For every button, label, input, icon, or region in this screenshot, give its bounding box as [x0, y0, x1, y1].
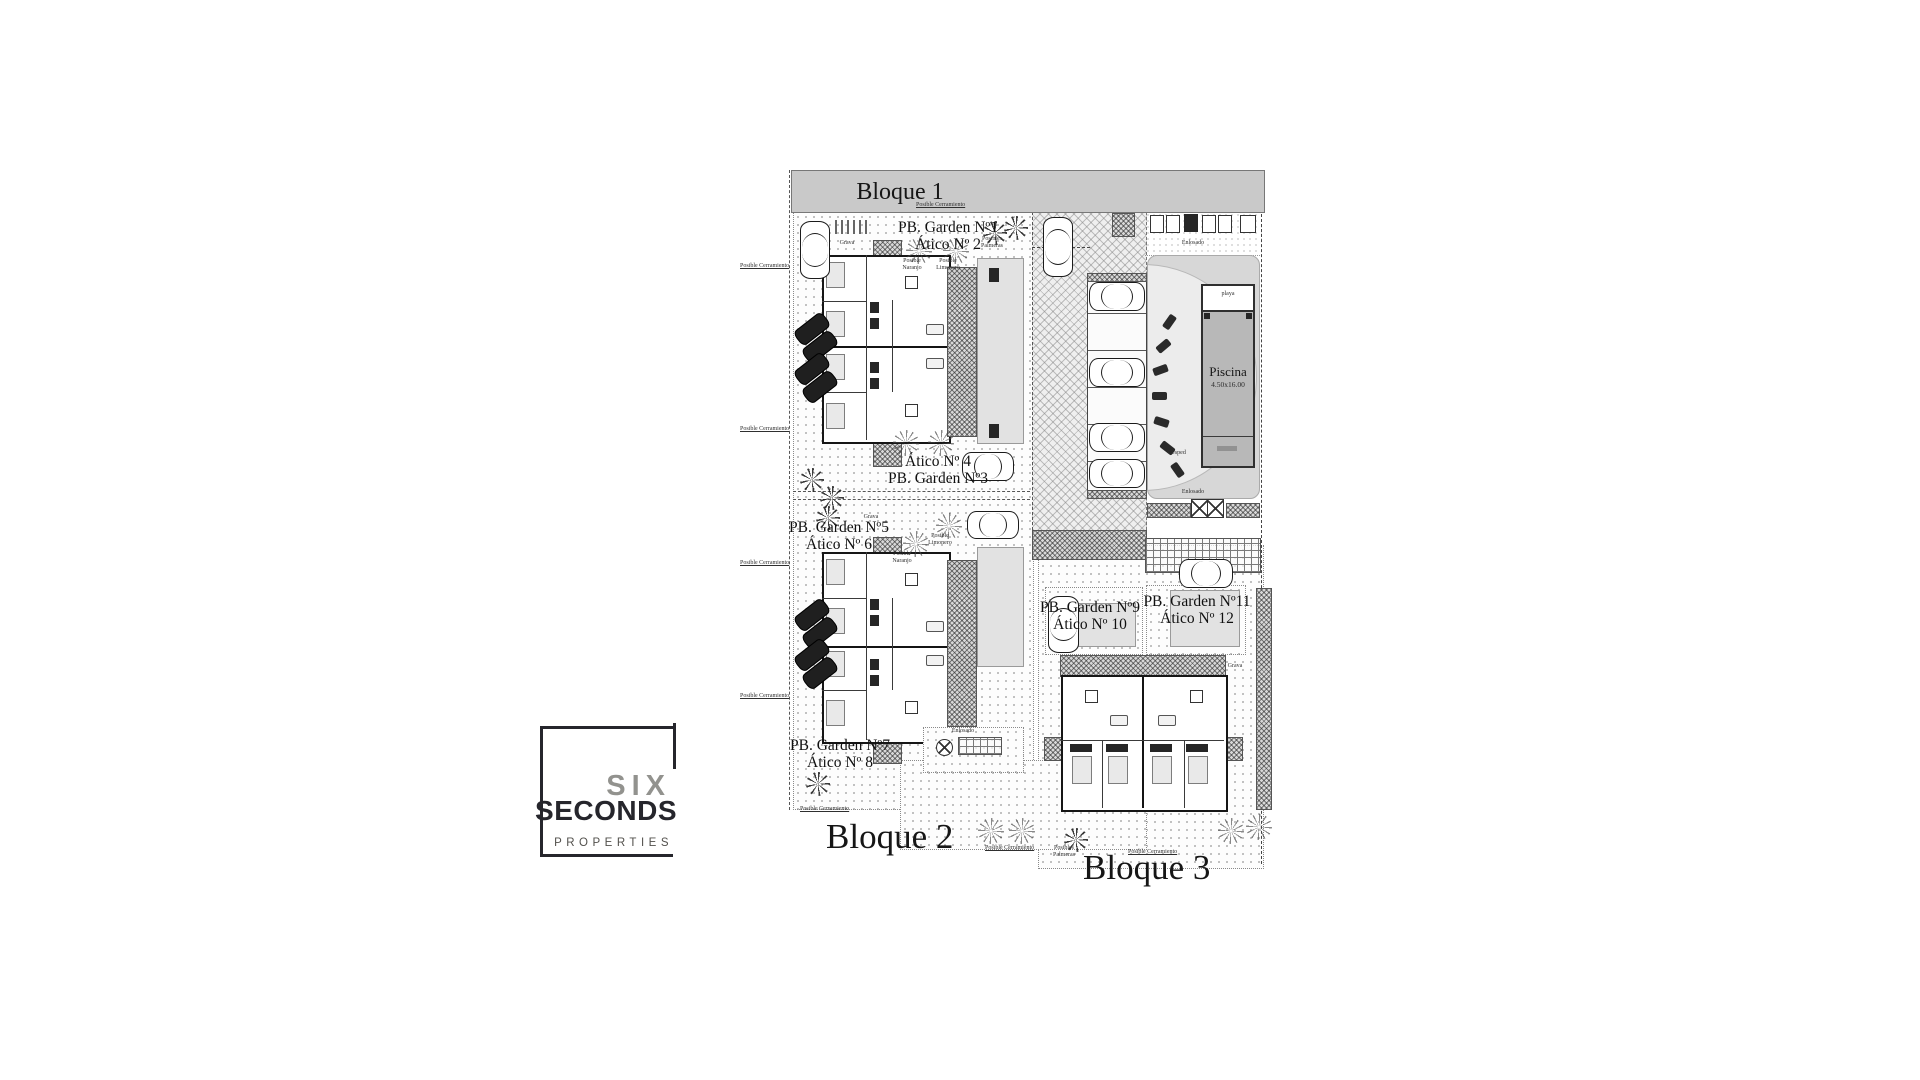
unit-label-line1: PB. Garden Nº1: [878, 219, 1018, 236]
palm-icon: [806, 772, 830, 796]
garden-furniture: [989, 424, 999, 438]
bike-rack-icon: [1191, 499, 1208, 518]
parking-cap: [1087, 490, 1147, 499]
unit-label-line1: Ático Nº 4: [868, 453, 1008, 470]
room-divider: [866, 255, 867, 440]
unit-label-line2: PB. Garden Nº3: [868, 470, 1008, 487]
sofa: [1158, 715, 1176, 726]
room-divider: [822, 598, 866, 599]
round-table: [936, 739, 953, 756]
sofa: [926, 358, 944, 369]
pool-label: Piscina 4.50x16.00: [1203, 364, 1253, 389]
site-plan-page: Bloque 1: [0, 0, 1920, 1080]
annotation: Enlosado: [1178, 489, 1208, 496]
car-icon: [800, 221, 830, 279]
annotation: Posible Cerramiento: [1128, 849, 1177, 856]
annotation: Posible Naranjo: [898, 258, 926, 271]
walkway-hatch: [1226, 503, 1260, 518]
room-divider: [822, 301, 866, 302]
parked-car-icon: [1089, 282, 1145, 311]
bathroom-fixture: [870, 362, 879, 373]
storage-shed: [1150, 215, 1164, 233]
bathroom-fixture: [870, 302, 879, 313]
ramp-hatch: [1032, 530, 1147, 560]
terrace-hatch: [947, 560, 977, 727]
bed-headboard: [1186, 744, 1208, 752]
car-icon: [1043, 217, 1073, 277]
unit-label-line1: PB. Garden Nº11: [1123, 593, 1271, 610]
party-wall: [822, 646, 947, 648]
room-divider: [1061, 740, 1224, 741]
dining-table: [1190, 690, 1203, 703]
dining-table: [905, 701, 918, 714]
annotation: Posibles Palmeras: [976, 236, 1008, 249]
bed-headboard: [1106, 744, 1128, 752]
storage-shed: [1218, 215, 1232, 233]
bathroom-fixture: [870, 378, 879, 389]
pool-size: 4.50x16.00: [1203, 380, 1253, 389]
sun-lounger-icon: [1152, 392, 1167, 400]
terrace-hatch: [1060, 655, 1226, 677]
planter-hatch: [1112, 213, 1135, 237]
unit-label-line2: Ático Nº 12: [1123, 610, 1271, 627]
dining-table: [1085, 690, 1098, 703]
annotation: Posible Cerramiento: [740, 560, 789, 567]
room-divider: [822, 690, 866, 691]
pool-divider: [1203, 436, 1253, 437]
bed: [826, 700, 845, 726]
dining-table: [905, 404, 918, 417]
bathroom-fixture: [870, 318, 879, 329]
annotation: Posible Naranjo: [888, 551, 916, 564]
tree-icon: [978, 818, 1004, 844]
storage-shed: [1240, 215, 1256, 233]
bed-headboard: [1150, 744, 1172, 752]
bed: [1072, 756, 1092, 784]
annotation: Posibles Palmeras: [1048, 845, 1080, 858]
room-divider: [892, 300, 893, 392]
storage-shed: [1184, 214, 1198, 232]
party-wall: [822, 346, 947, 348]
bed: [1152, 756, 1172, 784]
bed: [1108, 756, 1128, 784]
pool-solarium: playa Piscina 4.50x16.00: [1147, 255, 1260, 499]
pool-steps-mark: [1217, 446, 1237, 451]
car-icon: [967, 511, 1019, 539]
bloque2-label: Bloque 2: [826, 817, 953, 857]
sofa: [926, 324, 944, 335]
party-wall: [1142, 675, 1144, 808]
parked-car-icon: [1089, 358, 1145, 387]
car-icon: [1179, 559, 1233, 588]
room-divider: [1184, 740, 1185, 808]
pool-step: [1246, 313, 1252, 319]
sofa: [1110, 715, 1128, 726]
room-divider: [866, 552, 867, 740]
bed: [1188, 756, 1208, 784]
tree-icon: [1218, 818, 1244, 844]
parked-car-icon: [1089, 459, 1145, 488]
room-divider: [892, 598, 893, 690]
bed: [826, 559, 845, 585]
annotation: Grava: [1224, 663, 1246, 670]
annotation: playa: [1203, 291, 1253, 298]
logo-word-seconds: SECONDS: [535, 797, 677, 825]
logo-word-properties: PROPERTIES: [554, 838, 673, 850]
bathroom-fixture: [870, 599, 879, 610]
tree-icon: [1009, 818, 1035, 844]
sofa: [926, 655, 944, 666]
unit-label-line1: PB. Garden Nº5: [770, 519, 908, 536]
pool: playa Piscina 4.50x16.00: [1201, 284, 1255, 468]
annotation: Posible Cerramiento: [740, 693, 789, 700]
unit-label-line1: PB. Garden Nº7: [770, 737, 910, 754]
annotation: Posible Limonero: [925, 533, 955, 546]
terrace-hatch: [947, 267, 977, 437]
sofa: [926, 621, 944, 632]
annotation: Grava: [836, 240, 858, 247]
parked-car-icon: [1089, 423, 1145, 452]
bathroom-fixture: [870, 659, 879, 670]
unit-label-4-3: Ático Nº 4 PB. Garden Nº3: [868, 453, 1008, 487]
room-divider: [1102, 740, 1103, 808]
storage-shed: [1202, 215, 1216, 233]
pool-step: [1204, 313, 1210, 319]
annotation: Posible Cerramiento: [740, 426, 789, 433]
tree-icon: [1246, 814, 1272, 840]
pool-name: Piscina: [1203, 364, 1253, 380]
annotation: Cesped: [1165, 450, 1189, 457]
annotation: Posible Cerramiento: [740, 263, 789, 270]
bbq-table: [958, 737, 1002, 755]
walkway-hatch: [1147, 503, 1191, 518]
annotation: Posible Cerramiento: [916, 202, 965, 209]
pool-shallow-zone: playa: [1203, 286, 1253, 312]
dining-table: [905, 276, 918, 289]
dining-table: [905, 573, 918, 586]
logo-frame-right-segment: [673, 723, 676, 769]
annotation: Posible Cerramiento: [985, 845, 1034, 852]
patio-hatch: [1044, 737, 1062, 761]
unit-label-11-12: PB. Garden Nº11 Ático Nº 12: [1123, 593, 1271, 627]
annotation: Enlosado: [1178, 240, 1208, 247]
annotation: Enlosado: [948, 728, 978, 735]
unit-label-7-8: PB. Garden Nº7 Ático Nº 8: [770, 737, 910, 771]
unit-label-5-6: PB. Garden Nº5 Ático Nº 6: [770, 519, 908, 553]
annotation: Posible Cerramiento: [800, 806, 849, 813]
garden-furniture: [989, 268, 999, 282]
bathroom-fixture: [870, 675, 879, 686]
bed-headboard: [1070, 744, 1092, 752]
bed: [826, 403, 845, 429]
lawn-panel: [977, 258, 1024, 444]
storage-shed: [1166, 215, 1180, 233]
annotation: Posible Limonero: [933, 258, 963, 271]
parking-cap: [1087, 273, 1147, 282]
unit-label-line2: Ático Nº 8: [770, 754, 910, 771]
bike-rack-icon: [1207, 499, 1224, 518]
palm-icon: [800, 468, 824, 492]
six-seconds-logo: SIX SECONDS PROPERTIES: [540, 726, 673, 857]
bloque1-banner: Bloque 1: [791, 170, 1265, 213]
annotation: Grava: [860, 514, 882, 521]
bathroom-fixture: [870, 615, 879, 626]
room-divider: [822, 392, 866, 393]
gate-bars: [835, 220, 869, 234]
